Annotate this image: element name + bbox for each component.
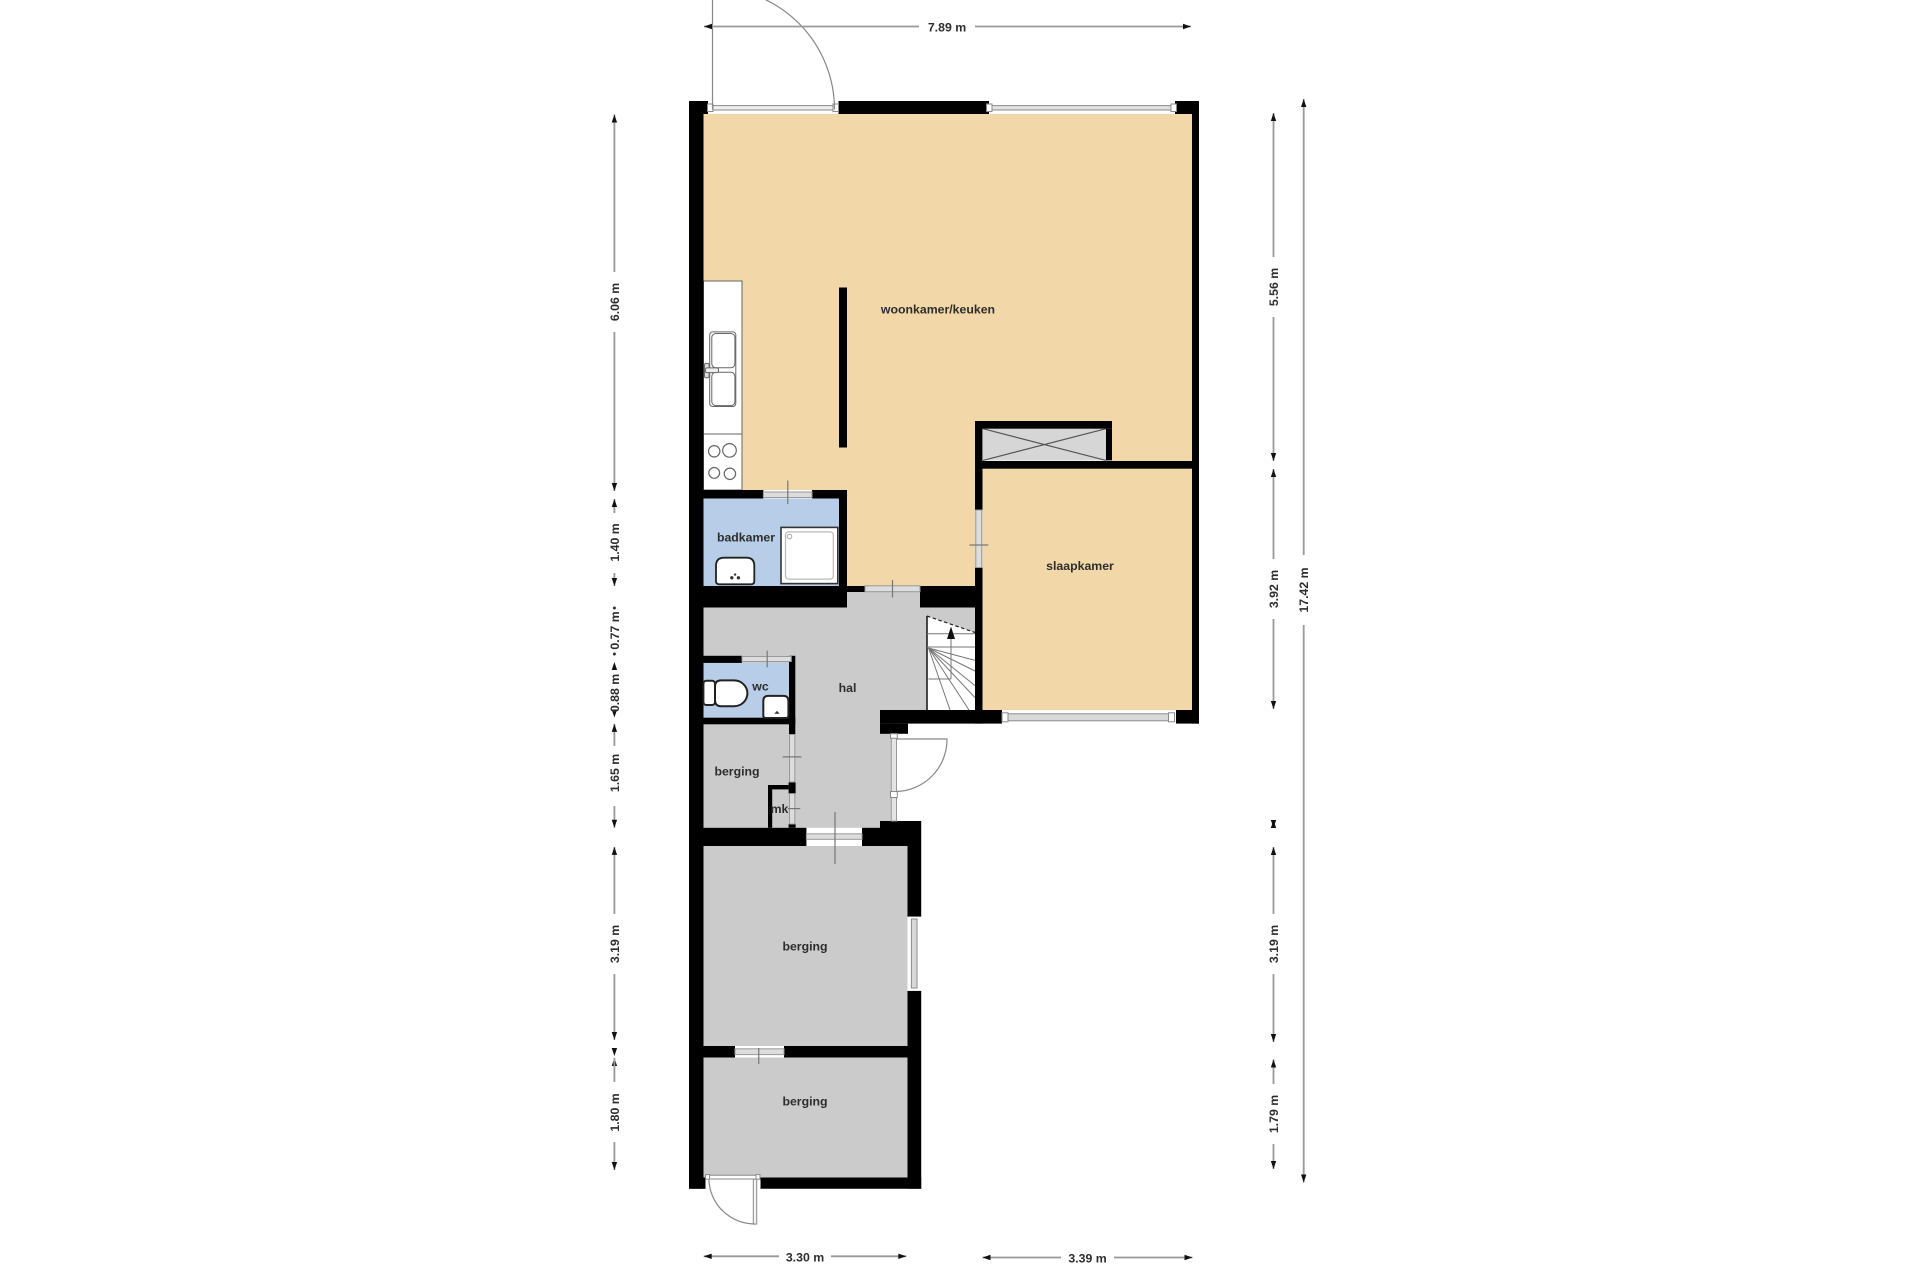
svg-text:3.19 m: 3.19 m <box>1267 925 1281 963</box>
svg-text:1.79 m: 1.79 m <box>1267 1095 1281 1133</box>
svg-text:17.42 m: 17.42 m <box>1297 567 1311 612</box>
svg-text:1.65 m: 1.65 m <box>608 754 622 792</box>
svg-text:6.06 m: 6.06 m <box>608 283 622 321</box>
svg-text:berging: berging <box>782 1095 827 1109</box>
svg-text:hal: hal <box>839 681 857 695</box>
svg-text:0.77 m: 0.77 m <box>608 611 622 649</box>
svg-text:3.39 m: 3.39 m <box>1068 1252 1106 1266</box>
svg-text:3.30 m: 3.30 m <box>786 1250 824 1264</box>
svg-text:berging: berging <box>714 765 759 779</box>
svg-text:1.40 m: 1.40 m <box>608 523 622 561</box>
svg-text:woonkamer/keuken: woonkamer/keuken <box>880 303 995 317</box>
svg-text:badkamer: badkamer <box>717 531 775 545</box>
svg-text:3.92 m: 3.92 m <box>1267 570 1281 608</box>
svg-text:slaapkamer: slaapkamer <box>1046 559 1114 573</box>
svg-text:7.89 m: 7.89 m <box>928 21 966 35</box>
svg-text:mk: mk <box>771 802 789 816</box>
svg-text:0.88 m: 0.88 m <box>608 674 622 712</box>
svg-text:3.19 m: 3.19 m <box>608 925 622 963</box>
svg-text:wc: wc <box>751 680 769 694</box>
svg-text:berging: berging <box>782 940 827 954</box>
svg-text:1.80 m: 1.80 m <box>608 1093 622 1131</box>
svg-text:5.56 m: 5.56 m <box>1267 268 1281 306</box>
